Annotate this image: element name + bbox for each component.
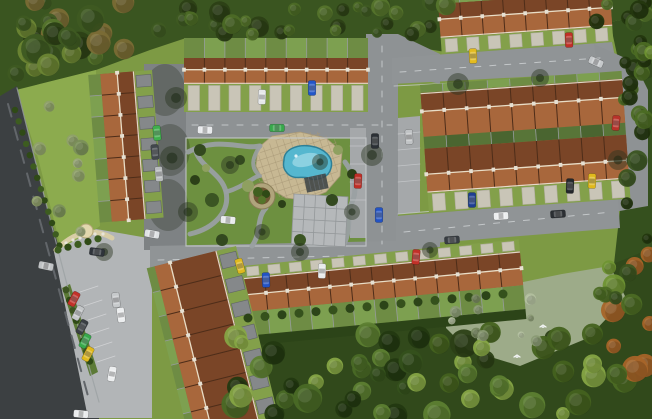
canopy-highlight: [285, 26, 291, 32]
scrub-dots-tree: [477, 330, 488, 341]
gable-cap: [459, 16, 463, 20]
bottom-forest-tree: [229, 384, 253, 408]
driveway-slab: [146, 201, 162, 214]
top-forest-ne-tree: [372, 27, 383, 38]
car: [151, 144, 160, 160]
stepping-stone: [101, 232, 104, 235]
yard-cell: [420, 83, 443, 93]
canopy-highlight: [182, 2, 191, 11]
gable-cap: [456, 272, 460, 276]
driveway-slab: [595, 28, 608, 42]
gable-cap: [346, 68, 350, 72]
park-shrub: [333, 145, 343, 155]
canopy-highlight: [528, 316, 532, 320]
right-band-tree: [621, 197, 633, 209]
driveway-slab: [332, 258, 345, 268]
aerial-site-plan: [0, 0, 652, 419]
canopy-highlight: [519, 332, 522, 335]
canopy-highlight: [55, 206, 62, 213]
top-forest-west-tree: [16, 15, 32, 31]
canopy-highlight: [382, 334, 393, 345]
car-windshield: [154, 130, 160, 135]
gable-cap: [599, 97, 603, 101]
canopy-highlight: [526, 295, 532, 301]
driveway-slab: [438, 247, 451, 257]
canopy-highlight: [242, 17, 248, 23]
gable-cap: [447, 171, 451, 175]
driveway-slab: [481, 243, 494, 253]
canopy-highlight: [387, 362, 399, 374]
bottom-forest-tree: [351, 354, 368, 371]
roadside-hedge-bush: [34, 175, 40, 181]
yard-cell: [554, 74, 577, 84]
canopy-highlight: [354, 357, 362, 365]
car: [308, 81, 316, 96]
canopy-highlight: [18, 18, 26, 26]
car-windshield: [113, 297, 119, 302]
driveway-slab: [509, 34, 522, 48]
bottom-forest-east-tree: [582, 324, 603, 345]
street-tree-core: [167, 153, 178, 164]
yard-cell: [92, 116, 106, 138]
canopy-highlight: [427, 405, 441, 419]
gable-cap: [285, 289, 289, 293]
top-forest-mid-tree: [330, 25, 342, 37]
scrub-dots-tree: [448, 317, 455, 324]
driveway-slab: [395, 252, 408, 262]
scrub-dots-tree: [471, 294, 480, 303]
yard-cell: [513, 129, 536, 143]
canopy-highlight: [383, 19, 389, 25]
car-windshield: [225, 217, 230, 223]
roadside-hedge-bush: [53, 231, 59, 237]
driveway-slab: [488, 35, 501, 49]
yard-fence: [442, 83, 443, 91]
gable-cap: [284, 68, 288, 72]
car-windshield: [555, 211, 560, 217]
car-windshield: [263, 278, 269, 283]
car: [354, 173, 362, 188]
canopy-highlight: [426, 22, 433, 29]
gable-cap: [487, 105, 491, 109]
gable-cap: [123, 176, 127, 180]
gable-cap: [498, 268, 502, 272]
canopy-highlight: [178, 15, 185, 22]
yard-cell: [487, 79, 510, 89]
yard-cell: [266, 38, 286, 58]
gable-cap: [477, 270, 481, 274]
canopy-highlight: [90, 34, 102, 46]
scrub-dots-tree: [518, 331, 525, 338]
gable-cap: [307, 287, 311, 291]
driveway-slab: [522, 187, 536, 205]
canopy-highlight: [644, 318, 651, 325]
nw-lawn-trees-tree: [75, 226, 85, 236]
canopy-highlight: [253, 359, 264, 370]
entrance-bushes-bush: [64, 244, 71, 251]
pool-sparkle: [294, 154, 297, 157]
canopy-highlight: [454, 334, 468, 348]
canopy-highlight: [68, 136, 74, 142]
car: [566, 178, 574, 193]
car-windshield: [406, 134, 412, 139]
canopy-highlight: [402, 353, 414, 365]
driveway-slab: [268, 264, 281, 274]
scrub-dots-tree: [473, 305, 482, 314]
top-forest-mid-tree: [360, 5, 373, 18]
right-band-tree: [627, 150, 648, 171]
car: [469, 48, 477, 63]
canopy-highlight: [47, 26, 59, 38]
gable-cap: [520, 266, 524, 270]
bottom-forest-tree: [293, 384, 322, 413]
roadside-hedge-bush: [49, 220, 55, 226]
south-hedge-bush: [346, 304, 355, 313]
top-forest-mid-tree: [336, 3, 349, 16]
canopy-highlight: [372, 369, 380, 377]
bottom-forest-east-tree: [458, 364, 477, 383]
canopy-highlight: [611, 293, 618, 300]
canopy-highlight: [637, 113, 647, 123]
south-hedge-bush: [312, 307, 321, 316]
car: [73, 410, 89, 419]
south-hedge-bush: [261, 312, 270, 321]
car-windshield: [203, 127, 208, 133]
yard-cell: [327, 38, 347, 58]
car: [258, 89, 266, 104]
bottom-forest-east-tree: [547, 327, 571, 351]
canopy-highlight: [81, 9, 95, 23]
right-band-tree: [622, 89, 638, 105]
canopy-highlight: [621, 172, 630, 181]
nw-lawn-trees-tree: [72, 169, 85, 182]
gable-cap: [349, 282, 353, 286]
south-hedge-bush: [414, 298, 423, 307]
south-hedge-bush: [380, 301, 389, 310]
street-tree-core: [258, 228, 265, 235]
bottom-forest-east-tree: [490, 375, 510, 395]
yard-cell: [307, 38, 327, 58]
car: [550, 210, 565, 219]
canopy-highlight: [643, 249, 651, 257]
canopy-highlight: [33, 198, 38, 203]
car: [318, 263, 326, 278]
street-tree-core: [296, 248, 304, 256]
canopy-highlight: [329, 360, 337, 368]
canopy-highlight: [359, 326, 371, 338]
canopy-highlight: [40, 57, 51, 68]
roadside-hedge-bush: [30, 163, 36, 169]
street-tree-core: [614, 156, 623, 165]
street-tree-core: [453, 79, 463, 89]
canopy-highlight: [26, 39, 41, 54]
canopy-highlight: [476, 342, 485, 351]
street-tree-core: [367, 150, 377, 160]
top-forest-mid-tree: [317, 5, 333, 21]
canopy-highlight: [265, 345, 277, 357]
car-windshield: [498, 213, 503, 219]
top-forest-ne-tree: [389, 6, 404, 21]
canopy-highlight: [475, 307, 480, 312]
driveway-slab: [229, 86, 240, 111]
canopy-highlight: [622, 267, 631, 276]
gable-cap: [305, 68, 309, 72]
car-windshield: [613, 120, 619, 125]
yard-cell: [446, 134, 469, 148]
top-forest-west-tree: [7, 65, 24, 82]
yard-cell: [424, 135, 447, 149]
roadside-hedge-bush: [19, 129, 25, 135]
street-tree-core: [226, 161, 234, 169]
car-windshield: [94, 249, 100, 255]
car-windshield: [118, 312, 124, 317]
car-windshield: [589, 179, 595, 184]
right-band-lower-tree: [593, 287, 606, 300]
canopy-highlight: [117, 42, 127, 52]
bird-body: [515, 356, 518, 358]
driveway-slab: [352, 86, 363, 111]
yard-fence: [554, 76, 555, 84]
canopy-highlight: [290, 5, 296, 11]
bottom-forest-east-tree: [461, 390, 480, 409]
canopy-highlight: [452, 308, 458, 314]
south-hedge-bush: [278, 310, 287, 319]
yard-cell: [98, 201, 112, 223]
canopy-highlight: [410, 376, 419, 385]
canopy-highlight: [311, 377, 319, 385]
car-windshield: [355, 179, 361, 184]
car: [612, 115, 621, 131]
gable-cap: [480, 14, 484, 18]
car-windshield: [372, 139, 378, 144]
gable-cap: [442, 108, 446, 112]
gable-cap: [603, 160, 607, 164]
top-forest-ne-tree: [424, 20, 437, 33]
canopy-highlight: [212, 5, 223, 16]
driveway-slab: [136, 74, 152, 87]
gable-cap: [434, 274, 438, 278]
gable-cap: [118, 113, 122, 117]
nw-lawn-trees-tree: [32, 196, 43, 207]
driveway-slab: [246, 266, 259, 276]
canopy-highlight: [411, 330, 422, 341]
canopy-highlight: [625, 78, 633, 86]
top-forest-west-tree: [86, 30, 110, 54]
car: [565, 32, 573, 47]
south-hedge-bush: [499, 290, 508, 299]
canopy-highlight: [399, 383, 406, 390]
canopy-highlight: [633, 3, 642, 12]
south-hedge-bush: [363, 302, 372, 311]
car: [412, 249, 421, 265]
canopy-highlight: [374, 0, 383, 9]
canopy-highlight: [236, 337, 243, 344]
top-forest-mid-tree: [283, 24, 295, 36]
driveway-slab: [455, 191, 469, 209]
top-forest-mid-tree: [151, 22, 166, 37]
south-hedge-bush: [244, 314, 253, 323]
top-forest-west-tree: [37, 53, 59, 75]
row-east-double: [418, 71, 632, 213]
canopy-highlight: [624, 92, 632, 100]
canopy-highlight: [248, 30, 254, 36]
yard-fence: [577, 74, 578, 82]
gable-cap: [392, 278, 396, 282]
right-band-tree: [618, 169, 636, 187]
canopy-highlight: [286, 380, 294, 388]
roof-shade-plane: [184, 58, 368, 70]
gable-cap: [182, 68, 186, 72]
entrance-bushes-bush: [94, 235, 101, 242]
stepping-stone: [93, 232, 96, 235]
canopy-highlight: [376, 407, 385, 416]
canopy-highlight: [361, 7, 367, 13]
park-shrub: [216, 234, 228, 246]
canopy-highlight: [551, 330, 563, 342]
south-hedge-bush: [329, 306, 338, 315]
canopy-highlight: [298, 388, 312, 402]
gable-cap: [469, 169, 473, 173]
canopy-highlight: [338, 403, 347, 412]
car: [444, 236, 459, 245]
canopy-highlight: [186, 14, 193, 21]
top-forest-west-tree: [77, 5, 105, 33]
stepping-stone: [71, 238, 74, 241]
gable-cap: [264, 291, 268, 295]
canopy-highlight: [332, 26, 338, 32]
yard-cell: [536, 127, 559, 141]
south-hedge-bush: [295, 309, 304, 318]
car-windshield: [319, 269, 325, 274]
yard-cell: [245, 38, 265, 58]
car: [588, 173, 596, 188]
canopy-highlight: [153, 25, 161, 33]
bottom-forest-tree: [345, 391, 362, 408]
driveway-slab: [502, 241, 515, 251]
canopy-highlight: [75, 142, 83, 150]
entrance-bushes-bush: [54, 246, 61, 253]
canopy-highlight: [338, 5, 345, 12]
parking-median-bushes-bush: [63, 287, 70, 294]
top-right-corner-tree: [589, 14, 605, 30]
roadside-hedge-bush: [45, 209, 51, 215]
gable-cap: [366, 68, 370, 72]
gable-cap: [437, 17, 441, 21]
bottom-forest-tree: [327, 358, 344, 375]
park-shrub: [202, 164, 210, 172]
south-hedge-bush: [482, 291, 491, 300]
yard-cell: [491, 131, 514, 145]
canopy-highlight: [558, 409, 565, 416]
car: [371, 134, 379, 149]
gable-cap: [559, 163, 563, 167]
canopy-highlight: [319, 8, 327, 16]
yard-cell: [599, 71, 622, 81]
park-shrub: [205, 193, 219, 207]
park-shrub: [326, 194, 338, 206]
canopy-highlight: [77, 228, 82, 233]
canopy-highlight: [636, 67, 644, 75]
bottom-forest-east-tree: [583, 354, 602, 373]
canopy-highlight: [603, 0, 609, 6]
gable-cap: [545, 10, 549, 14]
driveway-slab: [531, 32, 544, 46]
driveway-slab: [445, 38, 458, 52]
canopy-highlight: [493, 378, 503, 388]
car-windshield: [156, 171, 162, 176]
top-forest-mid-tree: [288, 3, 301, 16]
gable-cap: [122, 155, 126, 159]
canopy-highlight: [432, 337, 442, 347]
canopy-highlight: [630, 153, 640, 163]
gable-cap: [325, 68, 329, 72]
nw-lawn-trees-tree: [73, 140, 89, 156]
gable-cap: [203, 68, 207, 72]
canopy-highlight: [10, 67, 19, 76]
driveway-slab: [432, 193, 446, 211]
right-band-lower-tree: [606, 339, 621, 354]
canopy-highlight: [443, 376, 453, 386]
yard-fence: [510, 79, 511, 87]
driveway-slab: [544, 185, 558, 203]
yard-cell: [96, 179, 110, 201]
bottom-forest-tree: [262, 341, 286, 365]
roadside-hedge-bush: [16, 118, 22, 124]
nw-lawn-trees-tree: [73, 158, 83, 168]
car: [262, 272, 270, 287]
gable-cap: [577, 98, 581, 102]
park-shrub: [194, 144, 206, 156]
canopy-highlight: [533, 337, 538, 342]
south-hedge-bush: [397, 299, 406, 308]
yard-cell: [184, 38, 204, 58]
driveway-slab: [290, 86, 301, 111]
canopy-highlight: [267, 407, 277, 417]
driveway-slab: [574, 29, 587, 43]
car: [405, 129, 413, 144]
car-windshield: [567, 184, 573, 189]
roadside-hedge-bush: [27, 152, 33, 158]
yard-cell: [510, 77, 533, 87]
right-band-tree: [622, 76, 638, 92]
driveway-slab: [459, 245, 472, 255]
car-windshield: [152, 149, 158, 154]
bottom-forest-tree: [399, 350, 423, 374]
canopy-highlight: [449, 318, 453, 322]
driveway-slab: [138, 95, 154, 108]
canopy-highlight: [473, 296, 477, 300]
gable-cap: [328, 285, 332, 289]
canopy-highlight: [74, 160, 79, 165]
street-tree-core: [316, 158, 323, 165]
bird-body: [541, 326, 544, 328]
gable-cap: [514, 166, 518, 170]
canopy-highlight: [479, 332, 485, 338]
row-top-center: [182, 38, 370, 112]
street-tree-core: [536, 74, 544, 82]
driveway-slab: [209, 86, 220, 111]
car-windshield: [78, 411, 83, 417]
top-forest-west-tree: [58, 27, 77, 46]
car-windshield: [275, 125, 280, 131]
scrub-dots-tree: [531, 335, 542, 346]
canopy-highlight: [279, 393, 288, 402]
canopy-highlight: [375, 352, 384, 361]
top-forest-mid-tree: [240, 15, 251, 26]
scrub-dots-tree: [527, 315, 534, 322]
yard-cell: [348, 38, 368, 58]
driveway-slab: [270, 86, 281, 111]
